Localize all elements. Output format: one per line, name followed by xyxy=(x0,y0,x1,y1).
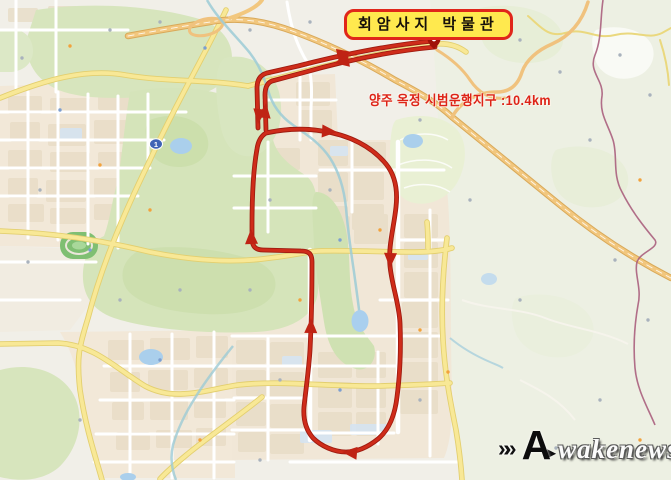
shield-number: 1 xyxy=(154,140,158,149)
route-shield: 1 xyxy=(150,139,163,149)
museum-label-box: 회암사지 박물관 xyxy=(344,9,513,40)
museum-label-text: 회암사지 박물관 xyxy=(358,16,499,33)
route-caption: 양주 옥정 시범운행지구 :10.4km xyxy=(369,89,551,109)
map-screenshot: 1 xyxy=(0,0,671,480)
map-canvas[interactable]: 1 xyxy=(0,0,671,480)
watermark-chevrons-icon: »» xyxy=(498,435,522,462)
watermark-logo-letter: A xyxy=(522,427,552,464)
watermark: »» A ► wakenews xyxy=(498,430,671,467)
watermark-text: wakenews xyxy=(558,434,671,465)
route-caption-text: 양주 옥정 시범운행지구 :10.4km xyxy=(369,93,551,108)
rural-zone xyxy=(430,0,671,480)
